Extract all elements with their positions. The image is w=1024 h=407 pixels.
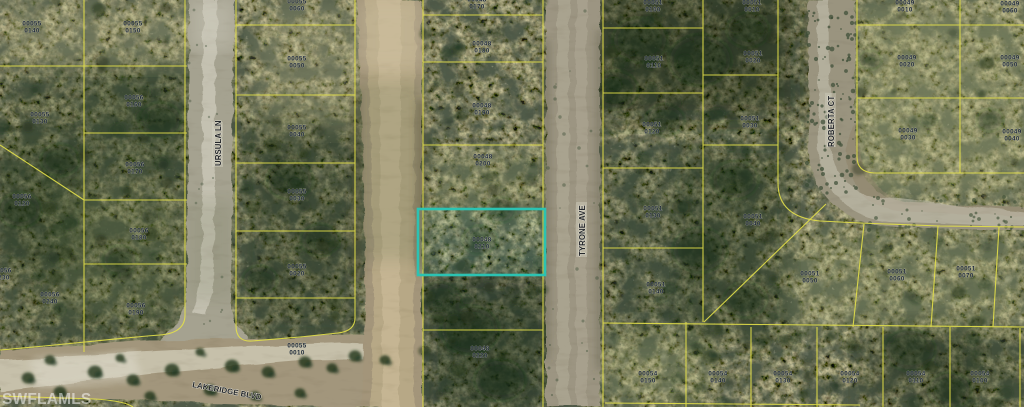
svg-text:SWFLAMLS: SWFLAMLS [2,391,91,407]
svg-text:0010: 0010 [289,350,305,357]
svg-text:0130: 0130 [645,213,661,220]
svg-text:00055: 00055 [30,112,49,119]
svg-text:0060: 0060 [889,276,905,283]
svg-text:00054: 00054 [840,371,859,378]
svg-text:0240: 0240 [42,299,58,306]
svg-text:0150: 0150 [125,28,141,35]
svg-text:00055: 00055 [22,21,41,28]
svg-text:0130: 0130 [775,378,791,385]
svg-text:0040: 0040 [745,221,761,228]
svg-text:0100: 0100 [972,378,988,385]
svg-text:00051: 00051 [800,271,819,278]
svg-text:00055: 00055 [287,343,306,350]
svg-text:00049: 00049 [898,128,917,135]
svg-text:00056: 00056 [125,162,144,169]
svg-text:00056: 00056 [124,95,143,102]
svg-text:00055: 00055 [287,125,306,132]
svg-text:00051: 00051 [743,214,762,221]
svg-text:0170: 0170 [469,4,485,11]
svg-text:00048: 00048 [473,154,492,161]
svg-text:0030: 0030 [289,196,305,203]
svg-text:00051: 00051 [644,56,663,63]
svg-text:00054: 00054 [906,371,925,378]
svg-text:0010: 0010 [744,7,760,14]
svg-text:0230: 0230 [0,275,10,282]
svg-text:0180: 0180 [474,48,490,55]
svg-text:00048: 00048 [472,41,491,48]
svg-text:0160: 0160 [126,102,142,109]
svg-text:0060: 0060 [289,6,305,13]
svg-text:0110: 0110 [646,63,661,70]
svg-text:0060: 0060 [1002,8,1018,15]
svg-text:0120: 0120 [842,378,858,385]
svg-text:00051: 00051 [646,282,665,289]
svg-text:0020: 0020 [899,62,915,69]
svg-text:0110: 0110 [908,378,923,385]
svg-text:00051: 00051 [887,269,906,276]
svg-text:0130: 0130 [32,119,48,126]
svg-text:00049: 00049 [1000,1,1019,8]
svg-text:0120: 0120 [14,201,30,208]
svg-text:00051: 00051 [740,116,759,123]
svg-text:0020: 0020 [745,58,761,65]
svg-text:00055: 00055 [287,264,306,271]
svg-text:00056: 00056 [129,228,148,235]
svg-text:00051: 00051 [956,266,975,273]
svg-text:00051: 00051 [643,206,662,213]
svg-text:00049: 00049 [1002,129,1021,136]
svg-text:0040: 0040 [1004,136,1020,143]
svg-text:0070: 0070 [958,273,974,280]
svg-text:0050: 0050 [1002,62,1018,69]
svg-text:00055: 00055 [287,56,306,63]
svg-text:00051: 00051 [642,122,661,129]
svg-text:0010: 0010 [897,7,913,14]
svg-text:00055: 00055 [287,189,306,196]
svg-text:0140: 0140 [648,289,664,296]
svg-text:0030: 0030 [900,135,916,142]
svg-text:00049: 00049 [1000,55,1019,62]
svg-text:URSULA LN: URSULA LN [214,120,223,166]
svg-text:0040: 0040 [289,132,305,139]
svg-text:0050: 0050 [802,278,818,285]
svg-text:00054: 00054 [970,371,989,378]
svg-text:00056: 00056 [12,194,31,201]
svg-text:00056: 00056 [40,292,59,299]
svg-text:0190: 0190 [474,110,490,117]
svg-text:00049: 00049 [897,55,916,62]
svg-text:0140: 0140 [710,378,726,385]
svg-text:0200: 0200 [475,161,491,168]
svg-text:00051: 00051 [743,51,762,58]
svg-text:00055: 00055 [123,21,142,28]
svg-text:00056: 00056 [0,268,12,275]
svg-text:0020: 0020 [289,271,305,278]
svg-text:0150: 0150 [640,378,656,385]
svg-text:0140: 0140 [24,28,40,35]
svg-text:00048: 00048 [472,237,491,244]
svg-text:00054: 00054 [638,371,657,378]
svg-text:0220: 0220 [472,353,488,360]
svg-text:0210: 0210 [474,244,490,251]
svg-text:0190: 0190 [128,310,144,317]
svg-text:0050: 0050 [289,63,305,70]
svg-text:0120: 0120 [644,129,660,136]
svg-text:0180: 0180 [131,235,147,242]
svg-text:0100: 0100 [645,7,661,14]
svg-text:00056: 00056 [126,303,145,310]
svg-text:ROBERTA CT: ROBERTA CT [827,96,836,147]
svg-text:00048: 00048 [472,103,491,110]
svg-text:00054: 00054 [708,371,727,378]
svg-text:TYRONE AVE: TYRONE AVE [578,205,587,256]
svg-text:00048: 00048 [470,346,489,353]
svg-text:0030: 0030 [742,123,758,130]
svg-text:00054: 00054 [773,371,792,378]
svg-text:0170: 0170 [127,169,143,176]
